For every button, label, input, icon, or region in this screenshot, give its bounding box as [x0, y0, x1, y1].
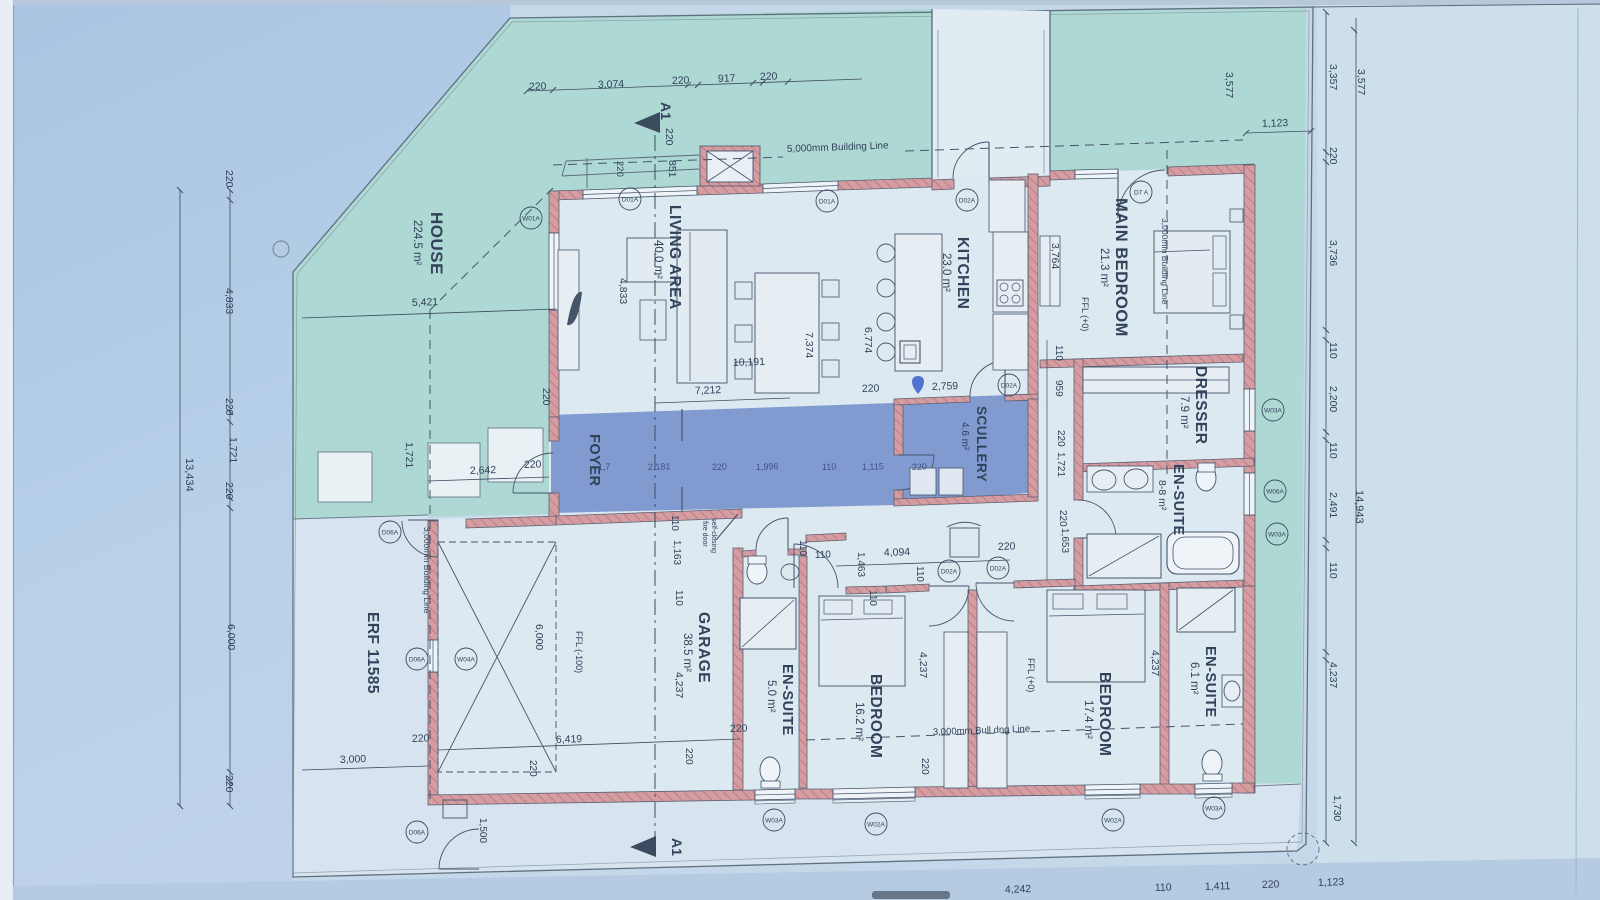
svg-text:1,163: 1,163 [671, 540, 682, 565]
svg-text:1,115: 1,115 [862, 461, 884, 472]
svg-text:110: 110 [815, 549, 832, 561]
svg-text:220: 220 [524, 458, 542, 471]
svg-text:3,577: 3,577 [1223, 72, 1235, 98]
svg-text:23.0 m²: 23.0 m² [940, 253, 952, 292]
svg-text:959: 959 [1053, 380, 1064, 397]
svg-text:1,500: 1,500 [477, 818, 488, 843]
svg-text:W06A: W06A [1266, 489, 1284, 496]
svg-text:FFL (+0): FFL (+0) [1080, 297, 1090, 331]
svg-text:21.3 m²: 21.3 m² [1098, 248, 1110, 287]
svg-text:220: 220 [998, 540, 1016, 553]
svg-text:FFL (-100): FFL (-100) [574, 631, 584, 673]
svg-text:220: 220 [412, 732, 430, 745]
svg-text:7,212: 7,212 [695, 384, 722, 397]
svg-text:917: 917 [718, 72, 736, 85]
svg-text:2,759: 2,759 [932, 380, 959, 393]
svg-text:1,653: 1,653 [1059, 528, 1070, 553]
svg-text:D02A: D02A [941, 569, 958, 576]
svg-text:220: 220 [223, 482, 235, 500]
svg-text:110: 110 [1327, 342, 1339, 359]
svg-text:BEDROOM: BEDROOM [1096, 672, 1113, 756]
svg-text:3,577: 3,577 [1355, 69, 1367, 95]
svg-text:224.5 m²: 224.5 m² [411, 220, 423, 266]
svg-text:D02A: D02A [990, 566, 1007, 573]
svg-text:220: 220 [862, 382, 880, 395]
svg-text:FOYER: FOYER [586, 434, 602, 486]
svg-text:D06A: D06A [409, 830, 426, 837]
svg-text:220: 220 [614, 161, 625, 177]
svg-text:1,730: 1,730 [1331, 795, 1343, 821]
svg-text:A1: A1 [658, 102, 674, 120]
svg-text:KITCHEN: KITCHEN [954, 237, 971, 309]
svg-text:16.2 m²: 16.2 m² [853, 702, 865, 741]
svg-text:4.6 m²: 4.6 m² [959, 422, 970, 451]
svg-text:220: 220 [540, 388, 552, 406]
svg-text:5,421: 5,421 [412, 296, 439, 309]
svg-text:4,237: 4,237 [1149, 650, 1161, 676]
svg-text:self-closing: self-closing [710, 518, 717, 553]
svg-text:851: 851 [666, 160, 678, 178]
svg-text:EN-SUITE: EN-SUITE [1170, 464, 1186, 536]
svg-text:110: 110 [669, 515, 680, 531]
svg-text:D01A: D01A [622, 197, 639, 204]
svg-text:D01A: D01A [819, 199, 836, 206]
svg-text:110: 110 [1155, 881, 1172, 894]
svg-text:4,833: 4,833 [617, 278, 629, 304]
svg-text:HOUSE: HOUSE [427, 212, 446, 275]
svg-text:SCULLERY: SCULLERY [974, 406, 989, 482]
svg-text:D06A: D06A [409, 657, 426, 664]
svg-text:1,721: 1,721 [1055, 452, 1066, 477]
svg-text:1,996: 1,996 [756, 461, 779, 472]
svg-text:220: 220 [760, 70, 778, 83]
svg-text:220: 220 [1327, 147, 1339, 165]
svg-text:7,374: 7,374 [803, 332, 815, 358]
svg-text:1,721: 1,721 [403, 442, 415, 468]
svg-text:38.5 m²: 38.5 m² [681, 633, 693, 672]
svg-text:220: 220 [223, 170, 235, 188]
svg-text:3,736: 3,736 [1327, 240, 1339, 266]
svg-text:2,200: 2,200 [1327, 386, 1339, 412]
svg-text:FFL (+0): FFL (+0) [1026, 658, 1036, 692]
svg-text:4,242: 4,242 [1005, 883, 1032, 896]
svg-text:1,123: 1,123 [1262, 117, 1289, 130]
svg-text:EN-SUITE: EN-SUITE [779, 664, 795, 736]
svg-text:1,123: 1,123 [1318, 876, 1345, 889]
svg-text:110: 110 [673, 590, 684, 606]
svg-text:4,237: 4,237 [917, 652, 929, 678]
svg-text:220: 220 [712, 461, 727, 472]
svg-text:220: 220 [672, 74, 690, 87]
svg-text:220: 220 [1057, 510, 1068, 527]
svg-text:4,094: 4,094 [884, 546, 911, 559]
svg-text:110: 110 [797, 540, 808, 556]
svg-text:17.4 m²: 17.4 m² [1082, 700, 1094, 739]
svg-text:3,357: 3,357 [1327, 64, 1339, 90]
svg-text:fire door: fire door [701, 521, 708, 547]
svg-text:BEDROOM: BEDROOM [867, 674, 884, 758]
svg-text:MAIN BEDROOM: MAIN BEDROOM [1112, 198, 1130, 337]
svg-text:D02A: D02A [1001, 383, 1018, 390]
svg-text:W01A: W01A [522, 216, 540, 223]
svg-text:4,237: 4,237 [1327, 662, 1339, 688]
svg-text:14,943: 14,943 [1353, 490, 1365, 524]
svg-text:220: 220 [223, 775, 235, 793]
svg-text:110: 110 [1327, 562, 1339, 579]
svg-text:220: 220 [223, 398, 235, 416]
svg-text:W04A: W04A [457, 657, 475, 664]
svg-text:3,000mm Building Line: 3,000mm Building Line [422, 527, 432, 614]
svg-text:1,411: 1,411 [1205, 880, 1231, 893]
svg-text:3,000: 3,000 [340, 753, 367, 766]
svg-text:110: 110 [1327, 442, 1339, 459]
svg-text:3,764: 3,764 [1049, 243, 1061, 269]
svg-text:6,000: 6,000 [225, 624, 237, 650]
svg-text:220: 220 [683, 748, 694, 765]
svg-text:D7 A: D7 A [1134, 190, 1149, 197]
svg-text:3,074: 3,074 [598, 78, 625, 91]
svg-text:220: 220 [527, 760, 538, 777]
svg-text:1,463: 1,463 [855, 552, 866, 577]
svg-text:GARAGE: GARAGE [695, 612, 712, 683]
svg-text:A1: A1 [669, 838, 685, 856]
svg-text:D02A: D02A [959, 198, 976, 205]
svg-text:1,721: 1,721 [227, 437, 239, 463]
svg-text:D06A: D06A [382, 530, 399, 537]
svg-text:4,833: 4,833 [223, 288, 235, 314]
svg-text:220: 220 [663, 128, 675, 146]
svg-text:1,7: 1,7 [598, 462, 611, 472]
svg-text:ERF 11585: ERF 11585 [364, 612, 381, 694]
svg-text:W03A: W03A [1205, 806, 1223, 813]
svg-text:220: 220 [912, 461, 927, 472]
svg-text:110: 110 [822, 462, 837, 472]
svg-text:110: 110 [914, 566, 925, 582]
svg-text:6.1 m²: 6.1 m² [1188, 662, 1200, 695]
svg-text:40.0 m²: 40.0 m² [652, 240, 664, 279]
svg-text:110: 110 [867, 590, 878, 606]
svg-text:2,491: 2,491 [1327, 492, 1339, 518]
svg-text:5.0 m²: 5.0 m² [765, 680, 777, 713]
svg-text:220: 220 [919, 758, 930, 775]
svg-text:6,419: 6,419 [556, 733, 583, 746]
svg-text:7.9 m²: 7.9 m² [1178, 396, 1190, 429]
svg-text:13,434: 13,434 [183, 458, 195, 492]
svg-text:10,191: 10,191 [733, 356, 766, 369]
svg-text:W03A: W03A [1268, 532, 1286, 539]
svg-text:3,000mm Building Line: 3,000mm Building Line [1160, 218, 1170, 305]
svg-text:LIVING AREA: LIVING AREA [666, 205, 683, 310]
svg-text:4,237: 4,237 [673, 672, 685, 698]
svg-text:EN-SUITE: EN-SUITE [1202, 646, 1218, 718]
svg-text:6,000: 6,000 [533, 624, 545, 650]
svg-text:220: 220 [1262, 878, 1280, 891]
svg-text:W02A: W02A [867, 822, 885, 829]
svg-text:220: 220 [1055, 430, 1066, 447]
svg-text:DRESSER: DRESSER [1192, 366, 1209, 444]
svg-text:8-8 m²: 8-8 m² [1156, 480, 1168, 511]
svg-text:110: 110 [1053, 345, 1064, 361]
svg-text:W03A: W03A [765, 818, 783, 825]
svg-text:220: 220 [730, 722, 748, 735]
svg-text:W02A: W02A [1104, 818, 1122, 825]
svg-text:W03A: W03A [1264, 408, 1282, 415]
svg-text:6,774: 6,774 [862, 327, 874, 353]
svg-text:2,181: 2,181 [648, 461, 671, 472]
svg-text:2,642: 2,642 [470, 464, 497, 477]
svg-text:220: 220 [529, 80, 547, 93]
